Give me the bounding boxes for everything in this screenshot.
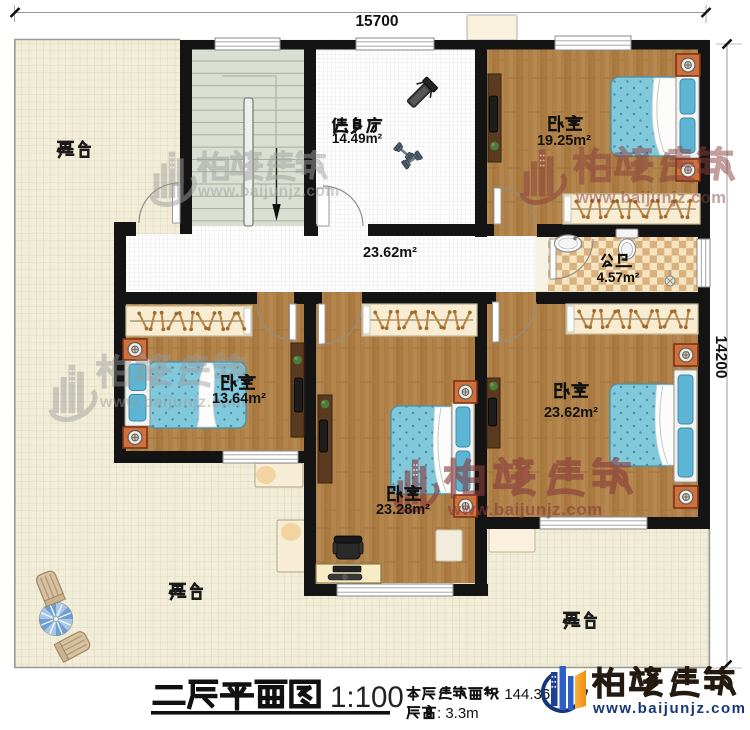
svg-text:1:100: 1:100 [330, 681, 404, 714]
svg-text:13.64m²: 13.64m² [212, 391, 266, 407]
svg-text:23.28m²: 23.28m² [376, 502, 430, 518]
svg-text:14200: 14200 [712, 335, 729, 378]
svg-text:15700: 15700 [355, 13, 398, 30]
svg-text:19.25m²: 19.25m² [537, 133, 591, 149]
svg-text:www.baijunjz.com: www.baijunjz.com [592, 700, 746, 717]
svg-text:4.57m²: 4.57m² [597, 270, 640, 285]
svg-text:www.baijunjz.com: www.baijunjz.com [447, 500, 603, 519]
svg-text:23.62m²: 23.62m² [363, 245, 417, 261]
svg-text:23.62m²: 23.62m² [544, 405, 598, 421]
svg-text:www.baijunjz.com: www.baijunjz.com [197, 183, 340, 200]
svg-text:14.49m²: 14.49m² [332, 131, 383, 146]
svg-text:www.baijunjz.com: www.baijunjz.com [575, 189, 726, 207]
svg-text:: 3.3m: : 3.3m [437, 705, 479, 722]
